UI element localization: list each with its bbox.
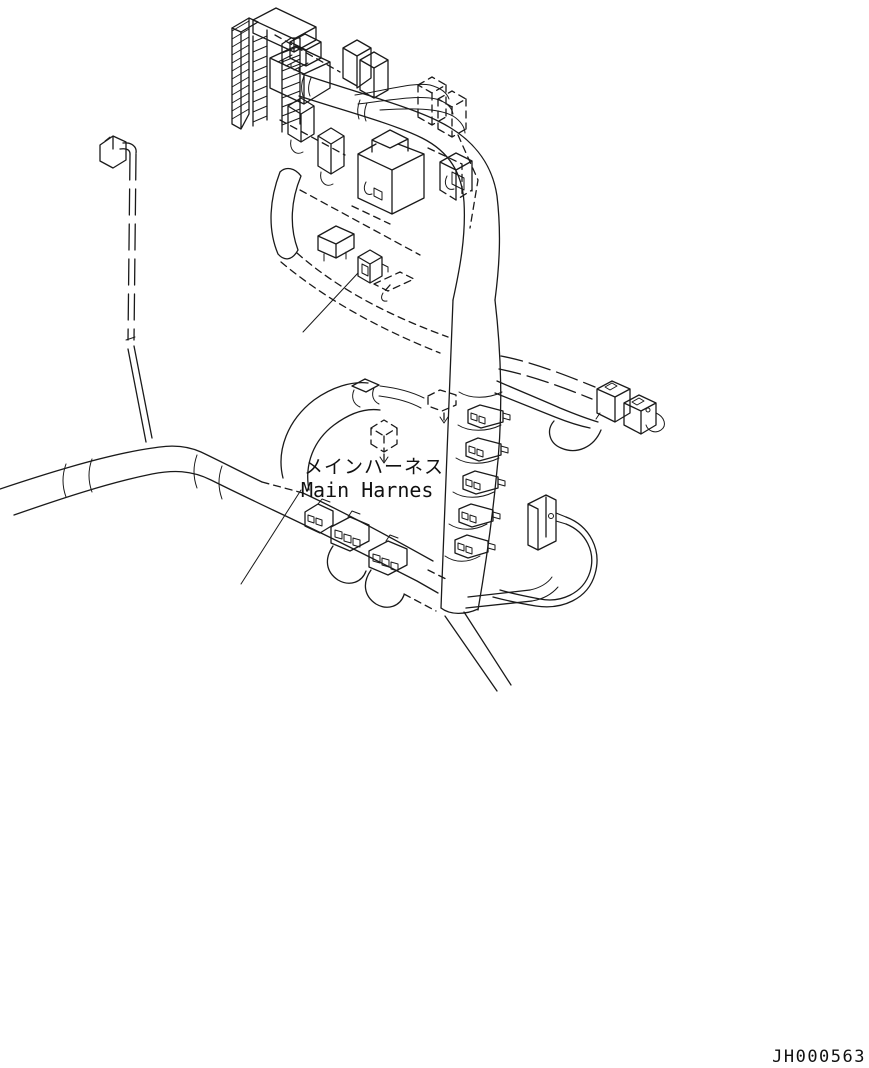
main-harness-trunk	[271, 74, 501, 613]
left-branch-wire	[100, 136, 152, 442]
terminal-block-connector	[232, 18, 300, 132]
callout-relay	[358, 250, 414, 301]
harness-line-art: メインハーネス Main Harnes JH000563	[0, 0, 869, 1068]
tube-mounted-connectors	[305, 499, 407, 607]
flat-connector	[493, 495, 597, 607]
right-branch-connectors	[495, 356, 664, 451]
parts-diagram-page: メインハーネス Main Harnes JH000563	[0, 0, 869, 1068]
leader-lines	[241, 273, 358, 584]
harness-label-en: Main Harnes	[301, 478, 433, 502]
bottom-branch-wires	[445, 577, 558, 691]
fuse-box-assembly	[253, 8, 478, 255]
harness-label-jp: メインハーネス	[304, 456, 444, 478]
part-number: JH000563	[772, 1047, 866, 1067]
relay-cubes	[288, 98, 472, 261]
